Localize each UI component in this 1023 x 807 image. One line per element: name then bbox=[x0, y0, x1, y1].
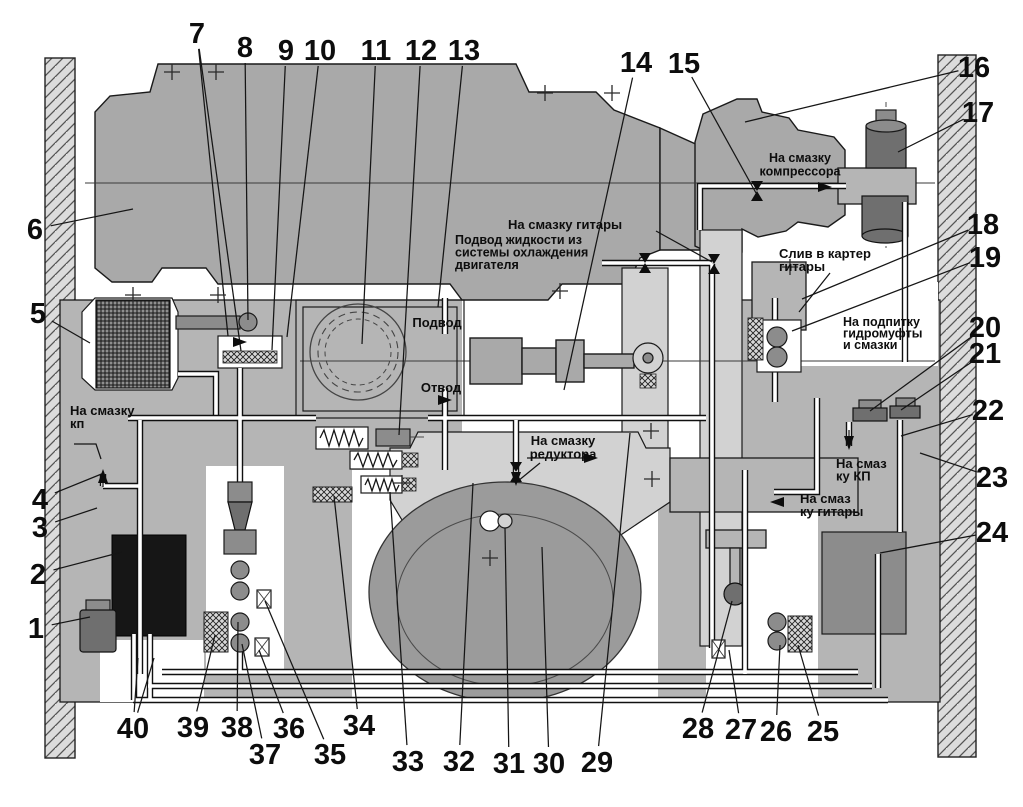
callout-38: 38 bbox=[221, 712, 253, 744]
callout-8: 8 bbox=[237, 32, 253, 64]
centrifuge-top bbox=[228, 482, 252, 502]
label-sliv: Слив в картергитары bbox=[779, 246, 871, 274]
label-reduktor: На смазкуредуктора bbox=[530, 433, 597, 462]
right-reservoir bbox=[822, 532, 906, 634]
feed-pump-seal bbox=[748, 318, 763, 360]
compressor-cyl-upper-top bbox=[866, 120, 906, 132]
leader-line-16 bbox=[745, 71, 958, 122]
guitar-gear-seal bbox=[640, 374, 656, 388]
callout-5: 5 bbox=[30, 298, 46, 330]
valve-2-plug bbox=[402, 453, 418, 467]
main-pump-gear-1 bbox=[231, 561, 249, 579]
callout-9: 9 bbox=[278, 35, 294, 67]
callout-24: 24 bbox=[976, 517, 1008, 549]
guitar-pump-gear-2 bbox=[768, 632, 786, 650]
callout-16: 16 bbox=[958, 52, 990, 84]
schematic-canvas: 1234567891011121314151617181920212223242… bbox=[0, 0, 1023, 807]
filler-canister bbox=[80, 610, 116, 652]
callout-11: 11 bbox=[361, 35, 392, 67]
callout-22: 22 bbox=[972, 395, 1004, 427]
callout-35: 35 bbox=[314, 739, 346, 771]
shaft-section bbox=[522, 348, 556, 374]
breather-cap-1 bbox=[853, 408, 887, 421]
valve-3-plug bbox=[402, 478, 416, 491]
label-guitar_top: На смазку гитары bbox=[508, 217, 622, 232]
leader-line-38 bbox=[237, 622, 238, 711]
callout-7: 7 bbox=[189, 18, 205, 50]
callout-37: 37 bbox=[249, 739, 281, 771]
scavenge-pump-gear-2 bbox=[231, 634, 249, 652]
scavenge-pump-gear-1 bbox=[231, 613, 249, 631]
guitar-gear-hub bbox=[643, 353, 653, 363]
shaft-flange-1 bbox=[470, 338, 522, 384]
callout-3: 3 bbox=[32, 512, 48, 544]
callout-19: 19 bbox=[969, 242, 1001, 274]
label-podvod: Подвод bbox=[412, 315, 462, 330]
callout-13: 13 bbox=[448, 35, 480, 67]
feed-pump-gear-2 bbox=[767, 347, 787, 367]
suction-strainer-left bbox=[204, 612, 228, 652]
callout-14: 14 bbox=[620, 47, 652, 79]
callout-10: 10 bbox=[304, 35, 336, 67]
bell-housing bbox=[660, 128, 700, 250]
bevel-gear-a bbox=[480, 511, 500, 531]
callout-34: 34 bbox=[343, 710, 375, 742]
label-otvod: Отвод bbox=[421, 380, 462, 395]
bevel-gear-b bbox=[498, 514, 512, 528]
callout-12: 12 bbox=[405, 35, 437, 67]
lubrication-schematic-figure: 1234567891011121314151617181920212223242… bbox=[0, 0, 1023, 807]
centrifuge-base bbox=[224, 530, 256, 554]
callout-39: 39 bbox=[177, 712, 209, 744]
callout-15: 15 bbox=[668, 48, 700, 80]
mesh-filter bbox=[313, 487, 352, 502]
callout-28: 28 bbox=[682, 713, 714, 745]
guitar-pump-gear-1 bbox=[768, 613, 786, 631]
engine-silhouette bbox=[95, 64, 660, 300]
callout-18: 18 bbox=[967, 209, 999, 241]
callout-31: 31 bbox=[493, 748, 525, 780]
oil-tank bbox=[112, 535, 186, 636]
callout-33: 33 bbox=[392, 746, 424, 778]
label-compressor: На смазкукомпрессора bbox=[760, 151, 842, 179]
callout-1: 1 bbox=[28, 613, 44, 645]
valve-1-plunger bbox=[376, 429, 410, 446]
callout-29: 29 bbox=[581, 747, 613, 779]
shaft-stub bbox=[584, 354, 634, 368]
right-wall-hatch bbox=[938, 55, 976, 757]
callout-4: 4 bbox=[32, 484, 48, 516]
seal-packing bbox=[223, 351, 277, 363]
callout-25: 25 bbox=[807, 716, 839, 748]
callout-30: 30 bbox=[533, 748, 565, 780]
bolt-cross-mark bbox=[604, 85, 620, 101]
callout-21: 21 bbox=[969, 338, 1001, 370]
main-pump-gear-2 bbox=[231, 582, 249, 600]
callout-26: 26 bbox=[760, 716, 792, 748]
suction-strainer-right bbox=[788, 616, 812, 652]
callout-40: 40 bbox=[117, 713, 149, 745]
scoop-stem bbox=[730, 548, 740, 586]
compressor-cyl-lower-bottom bbox=[862, 229, 908, 243]
callout-17: 17 bbox=[962, 97, 994, 129]
callout-27: 27 bbox=[725, 714, 757, 746]
callout-2: 2 bbox=[30, 559, 46, 591]
callout-23: 23 bbox=[976, 462, 1008, 494]
callout-32: 32 bbox=[443, 746, 475, 778]
radiator-top-duct bbox=[176, 316, 240, 329]
callout-6: 6 bbox=[27, 214, 43, 246]
radiator-core bbox=[96, 300, 170, 388]
feed-pump-gear-1 bbox=[767, 327, 787, 347]
